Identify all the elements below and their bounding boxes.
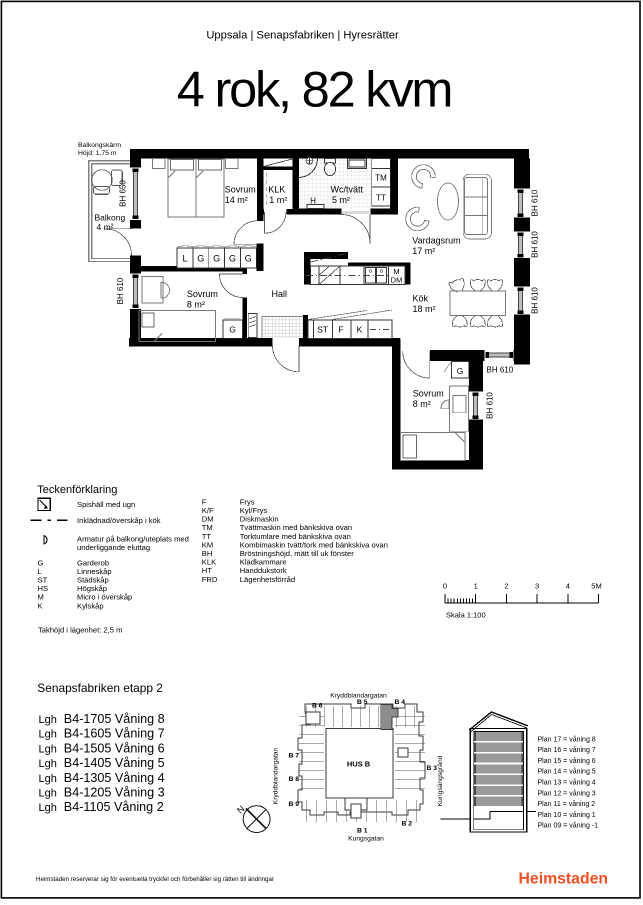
svg-text:Kryddblandargatan: Kryddblandargatan: [273, 747, 280, 804]
svg-text:Wc/tvätt: Wc/tvätt: [331, 185, 364, 195]
svg-text:Lgh: Lgh: [39, 758, 57, 770]
svg-text:B 2: B 2: [402, 821, 413, 828]
svg-text:B 6: B 6: [312, 703, 323, 710]
svg-text:Lgh: Lgh: [39, 714, 57, 726]
svg-text:F: F: [338, 325, 343, 335]
svg-text:Kungsängsgränd: Kungsängsgränd: [437, 755, 444, 806]
svg-text:Hall: Hall: [272, 289, 288, 299]
svg-text:8 m²: 8 m²: [413, 399, 431, 409]
svg-text:Plan 15 = våning 6: Plan 15 = våning 6: [538, 757, 596, 765]
svg-text:2: 2: [504, 582, 508, 591]
svg-text:BH 610: BH 610: [487, 366, 514, 375]
svg-text:1: 1: [474, 582, 478, 591]
svg-text:L: L: [182, 254, 187, 264]
svg-text:KLK: KLK: [268, 185, 285, 195]
svg-text:4 rok, 82 kvm: 4 rok, 82 kvm: [177, 61, 452, 118]
svg-text:Plan 13 = våning 4: Plan 13 = våning 4: [538, 779, 596, 787]
svg-text:G: G: [197, 254, 204, 264]
svg-text:17 m²: 17 m²: [412, 246, 435, 256]
svg-text:4 m²: 4 m²: [97, 222, 114, 232]
svg-text:0: 0: [443, 582, 447, 591]
svg-text:Sovrum: Sovrum: [187, 289, 218, 299]
svg-text:Plan 11 = våning 2: Plan 11 = våning 2: [538, 800, 596, 808]
svg-text:Plan 10 = våning 1: Plan 10 = våning 1: [538, 811, 596, 819]
svg-text:underliggande eluttag: underliggande eluttag: [77, 543, 150, 552]
svg-text:5M: 5M: [591, 582, 601, 591]
svg-text:Vardagsrum: Vardagsrum: [412, 236, 460, 246]
svg-text:Lgh: Lgh: [39, 802, 57, 814]
svg-text:Plan 16 = våning 7: Plan 16 = våning 7: [538, 746, 596, 754]
svg-text:B 9: B 9: [289, 801, 300, 808]
svg-text:BH 610: BH 610: [531, 231, 540, 258]
svg-text:Plan 09 = våning -1: Plan 09 = våning -1: [538, 822, 599, 830]
svg-text:B4-1505 Våning 6: B4-1505 Våning 6: [64, 741, 165, 755]
svg-text:G: G: [457, 366, 464, 376]
svg-text:G: G: [213, 254, 220, 264]
svg-text:B 4: B 4: [395, 699, 406, 706]
svg-text:BH 610: BH 610: [531, 189, 540, 216]
svg-text:Kylskåp: Kylskåp: [77, 601, 104, 610]
svg-text:1 m²: 1 m²: [269, 195, 287, 205]
svg-text:4: 4: [566, 582, 570, 591]
svg-text:G: G: [245, 254, 252, 264]
svg-text:BH 610: BH 610: [531, 287, 540, 314]
svg-text:Kök: Kök: [413, 294, 429, 304]
svg-text:K: K: [38, 601, 43, 610]
svg-text:Uppsala | Senapsfabriken | Hyr: Uppsala | Senapsfabriken | Hyresrätter: [206, 30, 399, 42]
svg-text:Skala 1:100: Skala 1:100: [446, 611, 486, 620]
svg-text:BH 650: BH 650: [119, 180, 128, 207]
svg-text:Lgh: Lgh: [39, 773, 57, 785]
svg-text:HUS B: HUS B: [347, 760, 371, 769]
svg-text:Balkongskärm: Balkongskärm: [78, 142, 121, 149]
svg-text:Kungsgatan: Kungsgatan: [348, 836, 384, 843]
svg-text:B 8: B 8: [289, 776, 300, 783]
svg-text:Plan 17 = våning 8: Plan 17 = våning 8: [538, 735, 596, 743]
svg-text:Sovrum: Sovrum: [413, 389, 444, 399]
svg-text:Takhöjd i lägenhet: 2,5 m: Takhöjd i lägenhet: 2,5 m: [38, 626, 122, 635]
svg-text:B4-1605 Våning 7: B4-1605 Våning 7: [64, 727, 165, 741]
svg-text:Lgh: Lgh: [39, 788, 57, 800]
svg-text:Inklädnad/överskåp i kök: Inklädnad/överskåp i kök: [77, 516, 161, 525]
svg-text:18 m²: 18 m²: [413, 304, 436, 314]
svg-text:Sovrum: Sovrum: [225, 185, 256, 195]
svg-text:Höjd: 1,75 m: Höjd: 1,75 m: [78, 150, 117, 157]
svg-text:Lgh: Lgh: [39, 729, 57, 741]
svg-text:B4-1705 Våning 8: B4-1705 Våning 8: [64, 712, 165, 726]
svg-text:G: G: [229, 254, 236, 264]
svg-text:B 1: B 1: [357, 828, 368, 835]
svg-text:Heimstaden reserverar sig för: Heimstaden reserverar sig för eventuella…: [36, 876, 274, 883]
svg-text:BH 610: BH 610: [116, 277, 125, 304]
svg-text:5 m²: 5 m²: [332, 195, 350, 205]
svg-text:B4-1105 Våning 2: B4-1105 Våning 2: [64, 800, 164, 814]
svg-text:Balkong: Balkong: [95, 213, 126, 223]
svg-text:B 3: B 3: [427, 765, 438, 772]
svg-text:Senapsfabriken etapp 2: Senapsfabriken etapp 2: [37, 681, 163, 695]
svg-text:K: K: [357, 325, 363, 335]
svg-text:Lgh: Lgh: [39, 743, 57, 755]
svg-text:8 m²: 8 m²: [187, 299, 205, 309]
svg-text:Plan 14 = våning 5: Plan 14 = våning 5: [538, 768, 596, 776]
svg-text:DM: DM: [391, 276, 403, 285]
svg-text:Spishäll med ugn: Spishäll med ugn: [77, 500, 135, 509]
svg-text:BH 610: BH 610: [486, 392, 495, 419]
svg-text:Teckenförklaring: Teckenförklaring: [37, 484, 117, 496]
svg-text:G: G: [229, 325, 236, 335]
svg-text:Lägenhetsförråd: Lägenhetsförråd: [240, 575, 295, 584]
svg-text:B4-1405 Våning 5: B4-1405 Våning 5: [64, 756, 165, 770]
svg-text:B4-1305 Våning 4: B4-1305 Våning 4: [64, 771, 165, 785]
svg-text:B 5: B 5: [357, 699, 368, 706]
svg-text:14 m²: 14 m²: [225, 195, 248, 205]
svg-text:TM: TM: [375, 174, 387, 183]
svg-text:3: 3: [535, 582, 539, 591]
svg-text:Plan 12 = våning 3: Plan 12 = våning 3: [538, 789, 596, 797]
svg-text:B4-1205 Våning 3: B4-1205 Våning 3: [64, 786, 165, 800]
svg-text:ST: ST: [317, 325, 328, 335]
svg-text:B 7: B 7: [289, 753, 300, 760]
svg-text:TT: TT: [376, 194, 386, 203]
svg-text:H: H: [310, 197, 316, 206]
svg-text:Heimstaden: Heimstaden: [519, 871, 609, 888]
svg-text:FRD: FRD: [202, 575, 218, 584]
